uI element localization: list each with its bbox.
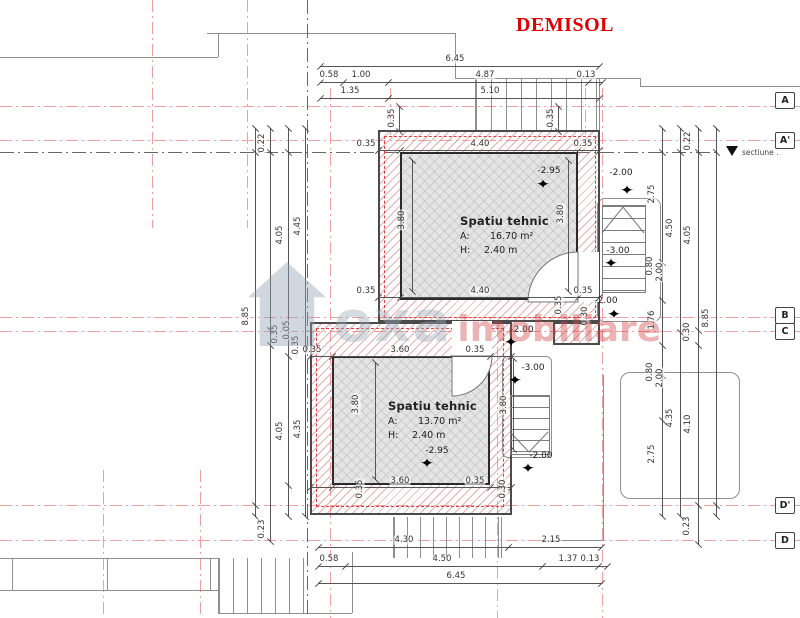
dimension-line bbox=[378, 150, 600, 151]
elevation-label: -2.00 bbox=[594, 296, 617, 306]
dimension-label: 0.58 bbox=[319, 71, 340, 80]
elevation-star-icon: ✦ bbox=[604, 258, 619, 271]
dimension-label: 0.35 bbox=[547, 108, 556, 129]
elevation-star-icon: ✦ bbox=[607, 309, 622, 322]
dimension-label: 0.35 bbox=[356, 140, 377, 149]
dimension-label: 1.37 bbox=[558, 555, 579, 564]
exterior-stair-bottom-left bbox=[218, 558, 304, 613]
floor-plan: Spatiu tehnic A: 16.70 m² H: 2.40 m Spat… bbox=[0, 0, 800, 618]
dimension-line bbox=[318, 547, 602, 548]
structure-outline bbox=[207, 33, 455, 34]
dimension-label: 0.35 bbox=[573, 287, 594, 296]
dimension-label: 0.80 bbox=[646, 256, 655, 277]
dimension-label: 0.35 bbox=[356, 479, 365, 500]
structure-outline bbox=[603, 375, 604, 540]
dimension-label: 4.35 bbox=[666, 408, 675, 429]
dimension-label: 4.35 bbox=[294, 419, 303, 440]
dimension-label: 0.13 bbox=[576, 71, 597, 80]
dimension-label: 0.22 bbox=[258, 133, 267, 154]
wall-jog-vestibule bbox=[553, 322, 600, 345]
room-name: Spatiu tehnic bbox=[388, 399, 478, 413]
dimension-label: 0.13 bbox=[580, 555, 601, 564]
area-value: 16.70 m² bbox=[490, 231, 533, 242]
structure-outline bbox=[218, 613, 352, 614]
elevation-star-icon: ✦ bbox=[521, 463, 536, 476]
dimension-label: 1.00 bbox=[351, 71, 372, 80]
page-title: DEMISOL bbox=[516, 14, 614, 37]
height-key: H: bbox=[388, 430, 404, 441]
elevation-star-icon: ✦ bbox=[620, 185, 635, 198]
room-name: Spatiu tehnic bbox=[460, 214, 550, 228]
grid-label-c: C bbox=[775, 323, 795, 340]
dimension-label: 2.75 bbox=[648, 184, 657, 205]
elevation-label: -3.00 bbox=[606, 246, 629, 256]
dimension-label: 3.80 bbox=[500, 395, 509, 416]
dimension-label: 3.80 bbox=[398, 210, 407, 231]
structure-outline bbox=[218, 33, 219, 57]
dimension-line bbox=[310, 487, 512, 488]
section-label: sectiune . bbox=[742, 148, 779, 157]
dimension-line bbox=[305, 128, 306, 517]
dimension-label: 4.05 bbox=[276, 225, 285, 246]
dimension-label: 4.50 bbox=[432, 555, 453, 564]
grid-label-a: A bbox=[775, 92, 795, 109]
dimension-label: 5.10 bbox=[480, 87, 501, 96]
dimension-line bbox=[318, 566, 608, 567]
dimension-line bbox=[318, 583, 602, 584]
structure-outline bbox=[107, 558, 108, 590]
elevation-label: -3.00 bbox=[521, 363, 544, 373]
height-value: 2.40 m bbox=[484, 245, 517, 256]
dimension-label: 0.35 bbox=[388, 108, 397, 129]
dimension-label: 0.35 bbox=[573, 140, 594, 149]
grid-axis-line bbox=[152, 0, 153, 228]
dimension-label: 3.80 bbox=[352, 394, 361, 415]
section-triangle-icon bbox=[726, 146, 738, 156]
dimension-label: 8.85 bbox=[702, 308, 711, 329]
structure-outline bbox=[210, 558, 211, 590]
grid-axis-line bbox=[247, 0, 248, 228]
area-key: A: bbox=[388, 416, 404, 427]
upper-room-label: Spatiu tehnic A: 16.70 m² H: 2.40 m bbox=[460, 214, 550, 256]
grid-axis-line bbox=[200, 470, 201, 618]
dimension-label: 4.05 bbox=[276, 421, 285, 442]
dimension-label: 2.75 bbox=[648, 444, 657, 465]
dimension-line bbox=[375, 362, 376, 480]
dimension-line bbox=[513, 358, 514, 450]
dimension-label: 4.87 bbox=[475, 71, 496, 80]
dimension-label: 4.50 bbox=[666, 218, 675, 239]
dimension-label: 3.60 bbox=[390, 346, 411, 355]
section-line bbox=[307, 0, 308, 618]
section-line bbox=[0, 152, 718, 153]
dimension-label: 4.30 bbox=[394, 536, 415, 545]
height-value: 2.40 m bbox=[412, 430, 445, 441]
dimension-label: 4.10 bbox=[684, 414, 693, 435]
dimension-line bbox=[412, 160, 413, 292]
dimension-label: 4.40 bbox=[470, 287, 491, 296]
dimension-line bbox=[558, 106, 559, 132]
elevation-label: -2.95 bbox=[537, 166, 560, 176]
dimension-line bbox=[698, 128, 699, 545]
elevation-label: -2.00 bbox=[510, 325, 533, 335]
stair-lower-right bbox=[510, 395, 550, 455]
dimension-label: 0.35 bbox=[302, 346, 323, 355]
dimension-label: 0.30 bbox=[683, 322, 692, 343]
dimension-label: 3.80 bbox=[557, 204, 566, 225]
area-value: 13.70 m² bbox=[418, 416, 461, 427]
dimension-label: 6.45 bbox=[445, 55, 466, 64]
dimension-line bbox=[568, 160, 569, 292]
dimension-label: 2.15 bbox=[541, 536, 562, 545]
dimension-label: 0.35 bbox=[271, 324, 280, 345]
elevation-star-icon: ✦ bbox=[504, 337, 519, 350]
structure-outline bbox=[0, 558, 218, 559]
dimension-label: 0.35 bbox=[555, 295, 564, 316]
grid-label-b: B bbox=[775, 307, 795, 324]
elevation-star-icon: ✦ bbox=[420, 458, 435, 471]
grid-label-dp: D' bbox=[775, 497, 795, 514]
dimension-label: 0.35 bbox=[465, 346, 486, 355]
grid-axis-line bbox=[103, 470, 104, 618]
dimension-label: 2.00 bbox=[656, 368, 665, 389]
area-key: A: bbox=[460, 231, 476, 242]
dimension-label: 0.23 bbox=[258, 519, 267, 540]
dimension-label: 4.40 bbox=[470, 140, 491, 149]
dimension-line bbox=[378, 297, 600, 298]
grid-label-d: D bbox=[775, 532, 795, 549]
elevation-star-icon: ✦ bbox=[536, 179, 551, 192]
structure-outline bbox=[0, 590, 220, 591]
dimension-label: 0.35 bbox=[356, 287, 377, 296]
dimension-label: 2.00 bbox=[656, 262, 665, 283]
dimension-label: 0.80 bbox=[646, 362, 655, 383]
dimension-line bbox=[320, 82, 603, 83]
elevation-star-icon: ✦ bbox=[508, 375, 523, 388]
dimension-label: 0.30 bbox=[581, 306, 590, 327]
dimension-label: 4.45 bbox=[294, 216, 303, 237]
structure-outline bbox=[640, 78, 641, 86]
dimension-line bbox=[320, 66, 600, 67]
elevation-label: -2.00 bbox=[529, 451, 552, 461]
dimension-label: 0.30 bbox=[499, 479, 508, 500]
dimension-line bbox=[320, 98, 600, 99]
height-key: H: bbox=[460, 245, 476, 256]
structure-outline bbox=[12, 558, 13, 590]
structure-outline bbox=[640, 86, 800, 87]
elevation-label: -2.00 bbox=[609, 168, 632, 178]
dimension-label: 3.60 bbox=[390, 477, 411, 486]
dimension-label: 0.58 bbox=[319, 555, 340, 564]
lower-room-label: Spatiu tehnic A: 13.70 m² H: 2.40 m bbox=[388, 399, 478, 441]
dimension-label: 6.45 bbox=[446, 572, 467, 581]
structure-outline bbox=[0, 57, 218, 58]
dimension-label: 0.22 bbox=[684, 131, 693, 152]
dimension-label: 8.85 bbox=[242, 306, 251, 327]
dimension-label: 4.05 bbox=[684, 225, 693, 246]
grid-label-ap: A' bbox=[775, 132, 795, 149]
dimension-line bbox=[399, 106, 400, 132]
dimension-label: 1.76 bbox=[648, 310, 657, 331]
dimension-line bbox=[716, 128, 717, 517]
dimension-label: 0.23 bbox=[683, 516, 692, 537]
dimension-label: 1.35 bbox=[340, 87, 361, 96]
dimension-label: 0.35 bbox=[292, 335, 301, 356]
dimension-line bbox=[255, 128, 256, 517]
dimension-label: 0.35 bbox=[465, 477, 486, 486]
dimension-line bbox=[310, 356, 512, 357]
dimension-line bbox=[662, 128, 663, 517]
elevation-label: -2.95 bbox=[425, 446, 448, 456]
